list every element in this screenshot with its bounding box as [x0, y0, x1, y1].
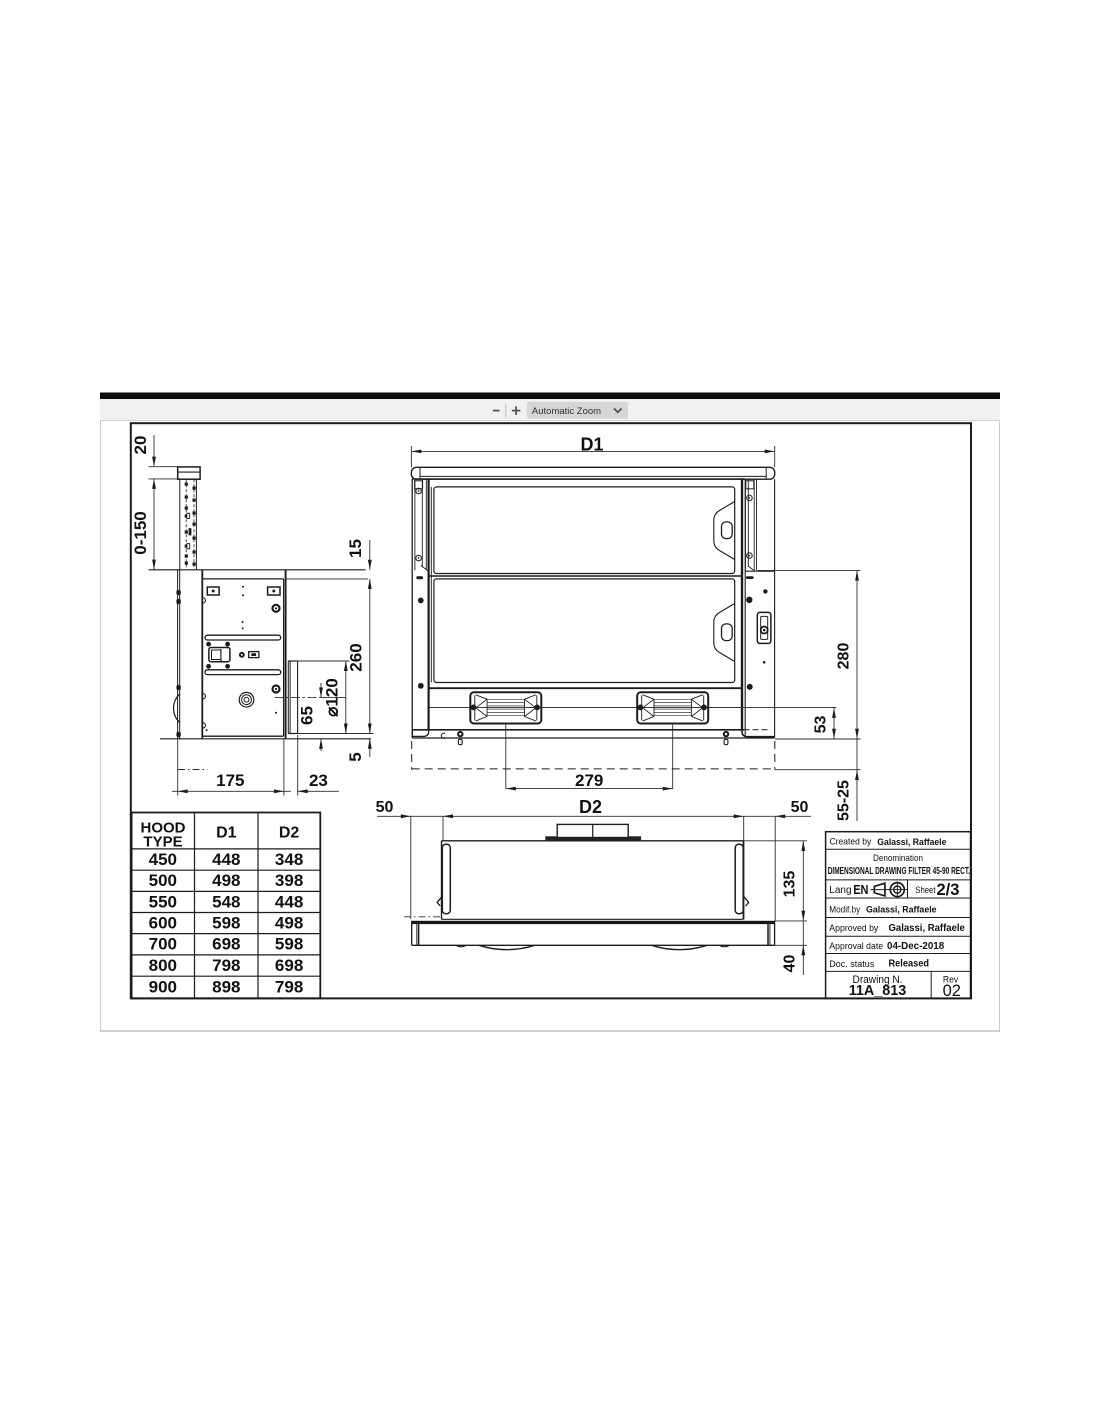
svg-text:798: 798: [275, 978, 303, 997]
svg-text:598: 598: [275, 935, 303, 954]
svg-text:2/3: 2/3: [937, 881, 960, 899]
svg-text:Sheet: Sheet: [915, 884, 936, 895]
svg-text:280: 280: [835, 643, 852, 670]
svg-text:D2: D2: [579, 797, 602, 817]
svg-text:398: 398: [275, 871, 303, 890]
svg-text:Released: Released: [889, 958, 930, 970]
svg-text:600: 600: [149, 914, 177, 933]
svg-text:15: 15: [346, 539, 365, 558]
svg-text:598: 598: [212, 914, 240, 933]
svg-text:D1: D1: [216, 825, 237, 842]
svg-text:700: 700: [149, 935, 177, 954]
svg-text:23: 23: [309, 771, 328, 790]
svg-text:175: 175: [216, 771, 244, 790]
svg-text:348: 348: [275, 850, 303, 869]
svg-text:798: 798: [212, 956, 240, 975]
svg-text:135: 135: [782, 871, 799, 898]
svg-text:Automatic Zoom: Automatic Zoom: [532, 406, 601, 417]
svg-text:TYPE: TYPE: [143, 833, 182, 850]
svg-text:04-Dec-2018: 04-Dec-2018: [887, 941, 945, 952]
svg-text:260: 260: [346, 643, 365, 671]
svg-text:50: 50: [376, 799, 394, 816]
svg-text:40: 40: [782, 955, 799, 973]
svg-text:279: 279: [575, 771, 603, 790]
svg-text:448: 448: [275, 892, 303, 911]
svg-text:0-150: 0-150: [131, 511, 150, 554]
svg-text:448: 448: [212, 850, 240, 869]
svg-text:Approved by: Approved by: [829, 923, 879, 933]
svg-text:548: 548: [212, 892, 240, 911]
svg-text:Galassi, Raffaele: Galassi, Raffaele: [866, 904, 937, 914]
svg-text:Galassi, Raffaele: Galassi, Raffaele: [877, 837, 946, 847]
svg-text:Denomination: Denomination: [873, 853, 923, 864]
svg-text:Created by: Created by: [830, 836, 872, 846]
svg-text:5: 5: [346, 752, 365, 761]
svg-text:698: 698: [212, 935, 240, 954]
svg-text:EN: EN: [853, 883, 868, 897]
svg-text:550: 550: [149, 892, 177, 911]
svg-text:Lang: Lang: [829, 885, 851, 896]
svg-text:Galassi, Raffaele: Galassi, Raffaele: [889, 923, 966, 934]
svg-text:53: 53: [812, 716, 829, 734]
svg-text:698: 698: [275, 956, 303, 975]
svg-text:Modif.by: Modif.by: [829, 904, 861, 914]
svg-text:800: 800: [149, 956, 177, 975]
svg-text:498: 498: [212, 871, 240, 890]
svg-text:50: 50: [791, 799, 809, 816]
svg-text:11A_813: 11A_813: [849, 983, 907, 999]
svg-text:498: 498: [275, 914, 303, 933]
svg-text:DIMENSIONAL DRAWING FILTER 45-: DIMENSIONAL DRAWING FILTER 45-90 RECT.: [828, 864, 970, 876]
svg-text:55-25: 55-25: [835, 780, 852, 821]
svg-text:898: 898: [212, 978, 240, 997]
svg-text:Doc. status: Doc. status: [829, 959, 875, 969]
svg-text:02: 02: [943, 982, 961, 1000]
svg-text:Approval date: Approval date: [829, 941, 883, 951]
svg-text:450: 450: [149, 850, 177, 869]
svg-text:D2: D2: [279, 825, 300, 842]
svg-text:⌀120: ⌀120: [323, 678, 342, 717]
svg-text:900: 900: [149, 978, 177, 997]
svg-text:500: 500: [149, 871, 177, 890]
svg-text:20: 20: [131, 436, 150, 455]
svg-text:65: 65: [297, 706, 316, 725]
